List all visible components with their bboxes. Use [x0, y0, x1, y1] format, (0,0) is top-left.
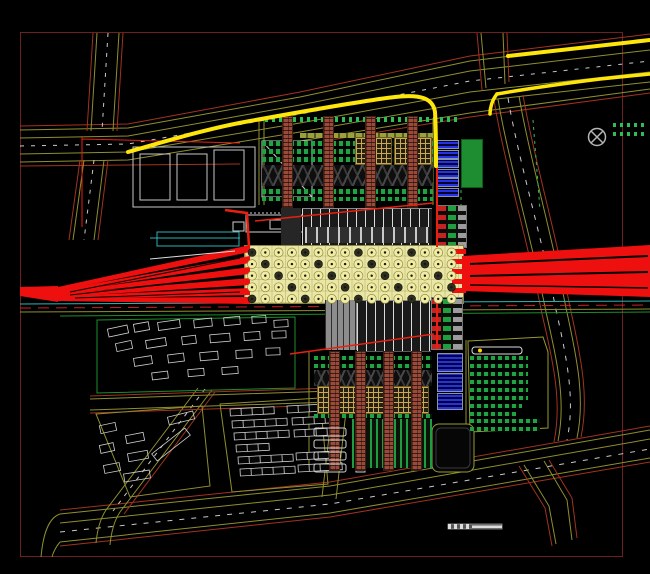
red-alignment-lines — [82, 137, 437, 354]
cad-site-plan-canvas[interactable] — [0, 0, 650, 574]
railway-fan-east — [452, 245, 650, 297]
south-white-bays — [314, 428, 346, 472]
overlay-linework-layer — [0, 0, 650, 574]
railway-fan-west — [20, 245, 250, 304]
plaza-tree-grid — [248, 248, 457, 303]
highlighted-route — [128, 40, 650, 166]
